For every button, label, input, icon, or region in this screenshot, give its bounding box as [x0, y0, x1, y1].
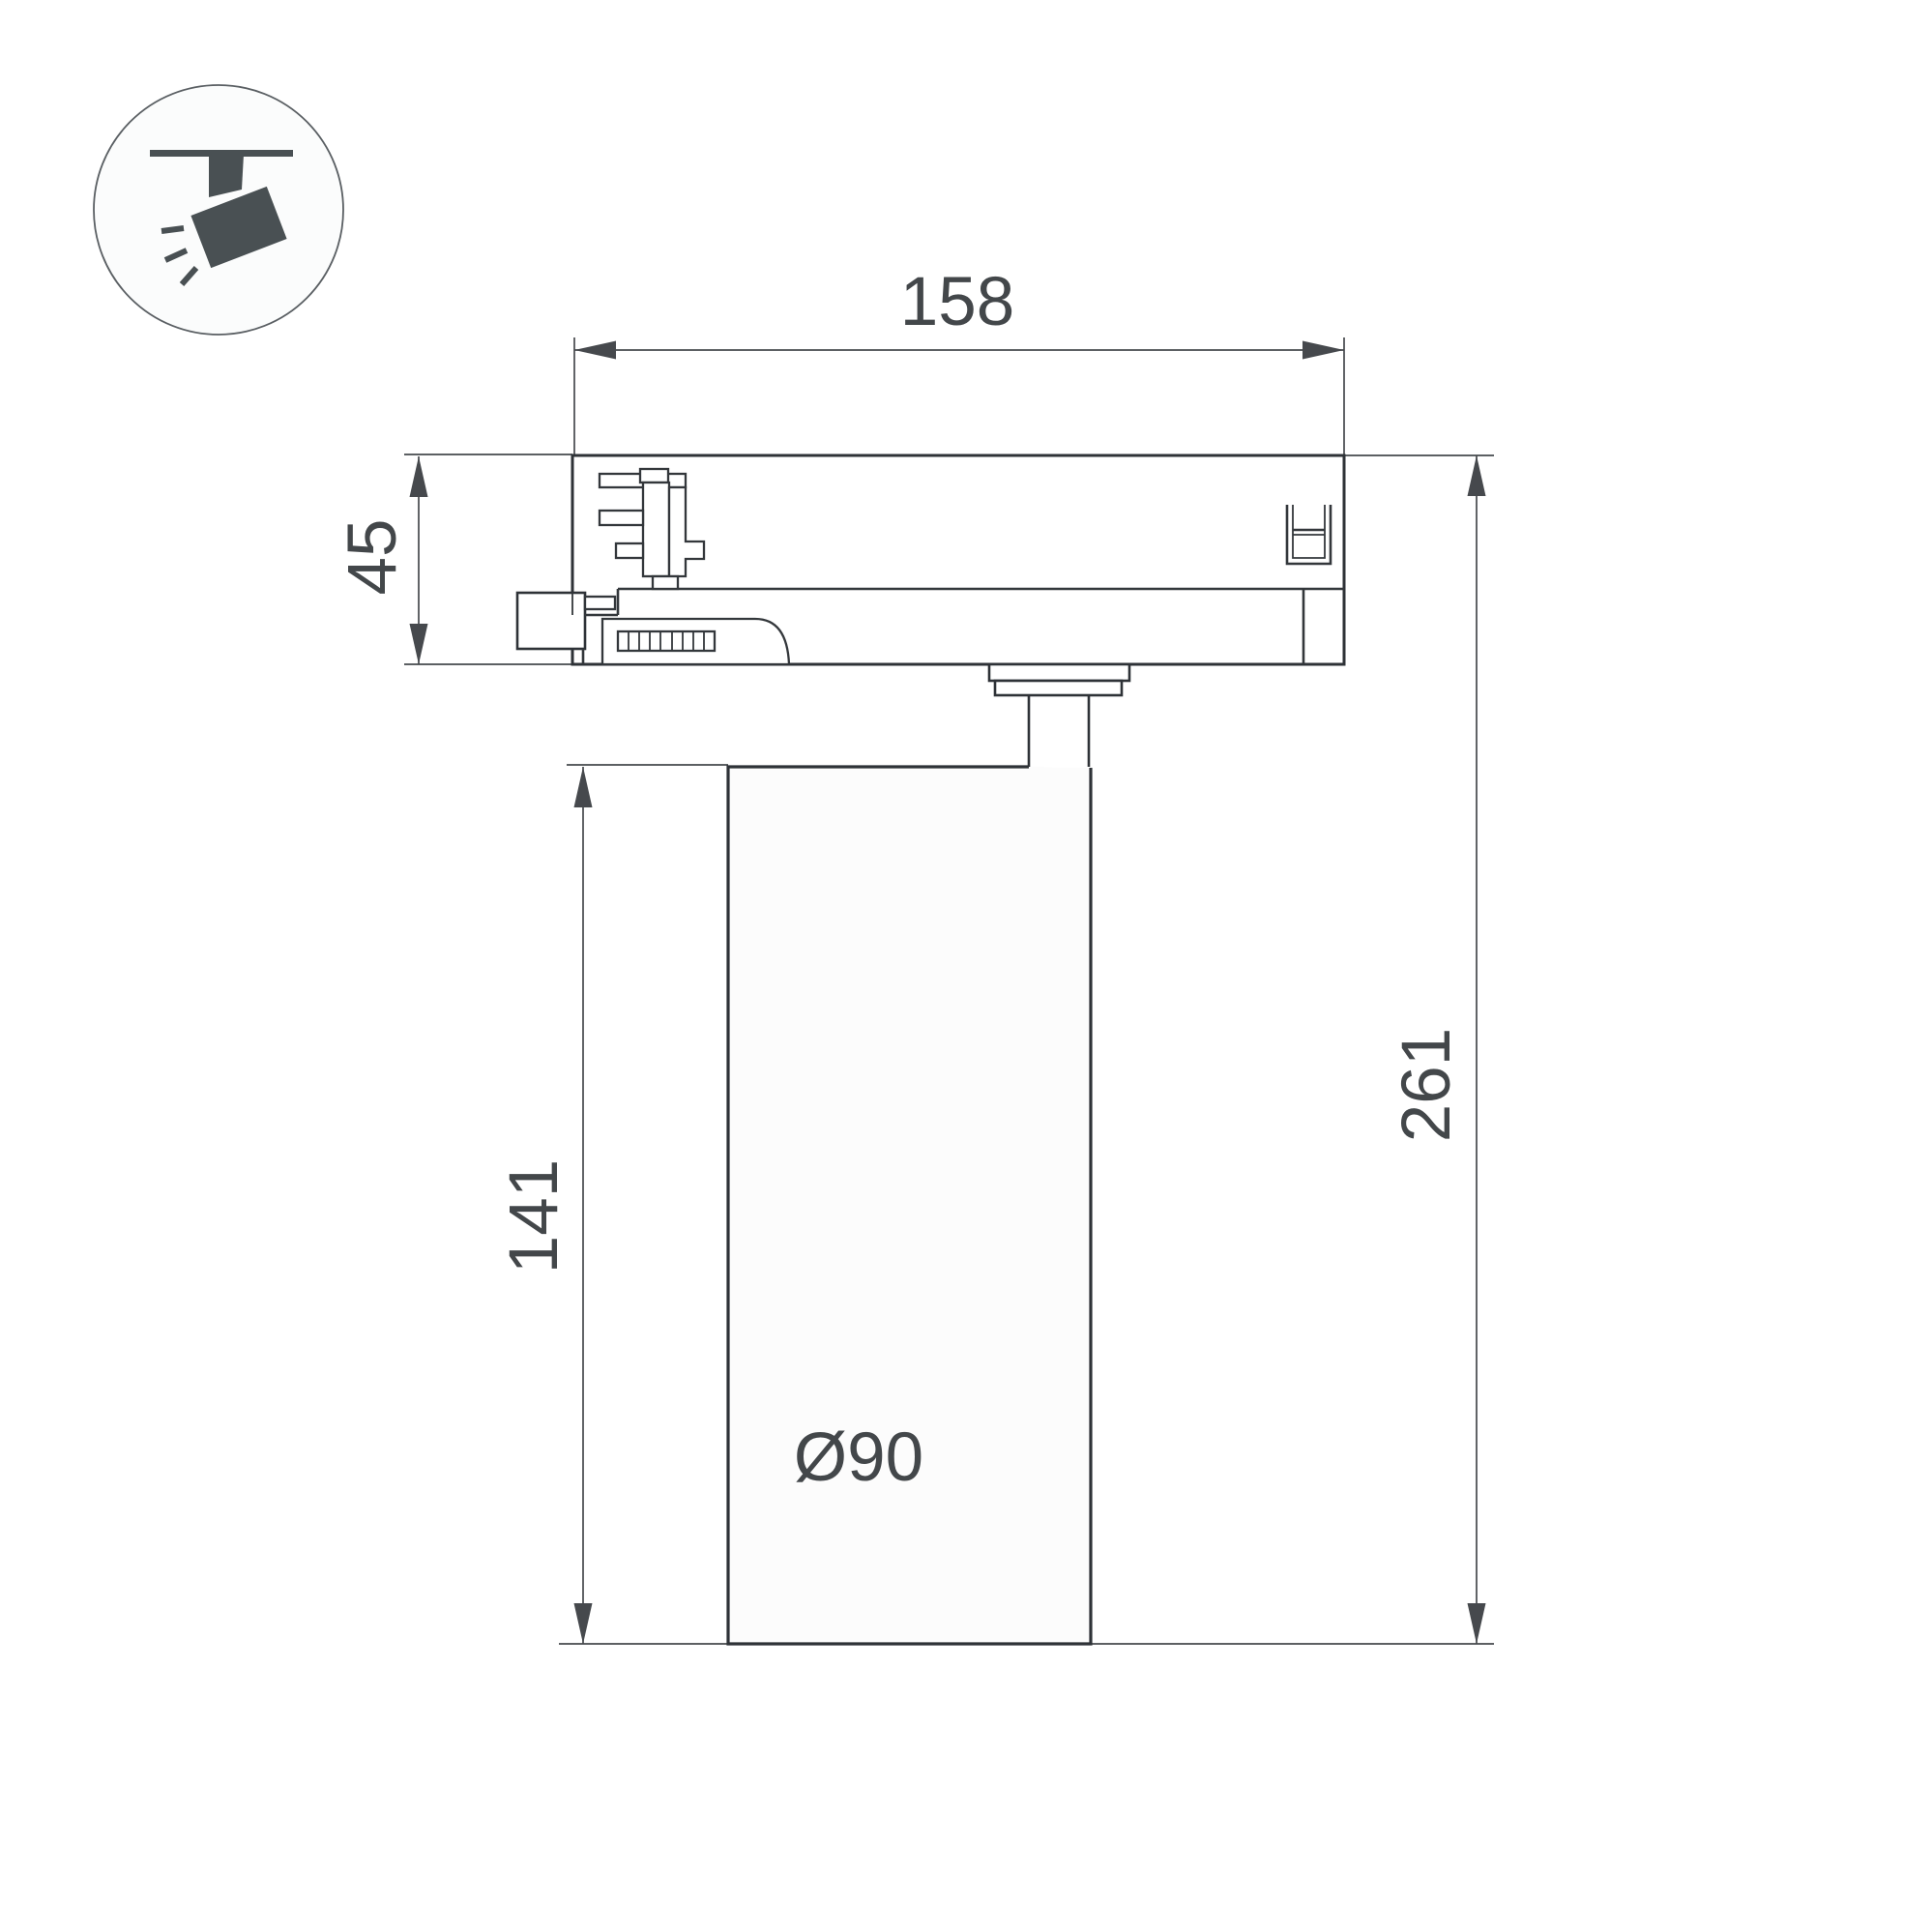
arrow-45-top: [410, 456, 428, 497]
lower-housing: [602, 619, 789, 664]
drawing-page: 158 45 141 261 Ø90: [0, 0, 1932, 1932]
track-adapter: [517, 455, 1344, 664]
lock-latch: [585, 597, 615, 609]
dim-158-label: 158: [900, 264, 1014, 340]
track-light-icon: [94, 85, 343, 335]
lamp-body-outline: [728, 767, 1091, 1644]
dim-158-lines: [574, 337, 1344, 455]
stem-sides: [1029, 695, 1089, 767]
dimension-drawing: 158 45 141 261 Ø90: [0, 0, 1932, 1932]
dim-261-label: 261: [1389, 1028, 1465, 1142]
contact-foot: [653, 576, 678, 589]
lock-box-body: [517, 593, 585, 649]
arrow-261-top: [1468, 455, 1486, 496]
contact-spine: [643, 483, 669, 576]
lamp-body: [728, 767, 1091, 1644]
arrow-141-top: [574, 767, 593, 807]
arrow-141-bottom: [574, 1603, 593, 1644]
arrow-158-right: [1303, 341, 1344, 360]
mount-stem: [989, 664, 1129, 767]
dim-90-label: Ø90: [794, 1420, 923, 1496]
dim-45-label: 45: [335, 519, 411, 596]
contact-prong-mid: [600, 511, 643, 525]
dim-141-label: 141: [496, 1159, 572, 1273]
contact-prong-low: [616, 543, 643, 558]
arrow-45-bottom: [410, 624, 428, 664]
contact-cap: [640, 469, 668, 483]
arrow-261-bottom: [1468, 1603, 1486, 1644]
flange-upper: [989, 664, 1129, 681]
flange-lower: [995, 681, 1122, 695]
arrow-158-left: [574, 341, 616, 360]
dim-141-lines: [567, 765, 728, 1644]
ribbed-dial: [618, 631, 715, 651]
